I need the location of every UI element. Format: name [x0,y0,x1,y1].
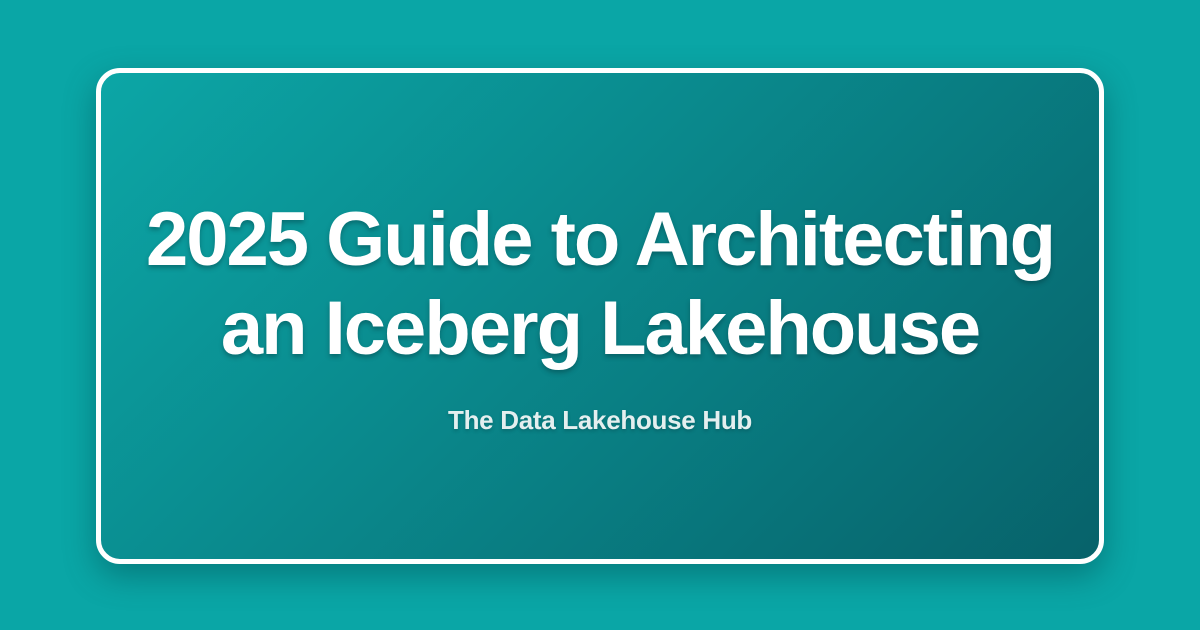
title-line-1: 2025 Guide to Architecting [146,196,1054,284]
card: 2025 Guide to Architecting an Iceberg La… [96,68,1104,564]
title-line-2: an Iceberg Lakehouse [146,285,1054,373]
page-title: 2025 Guide to Architecting an Iceberg La… [126,196,1074,372]
subtitle: The Data Lakehouse Hub [448,405,752,436]
page-background: 2025 Guide to Architecting an Iceberg La… [0,0,1200,630]
